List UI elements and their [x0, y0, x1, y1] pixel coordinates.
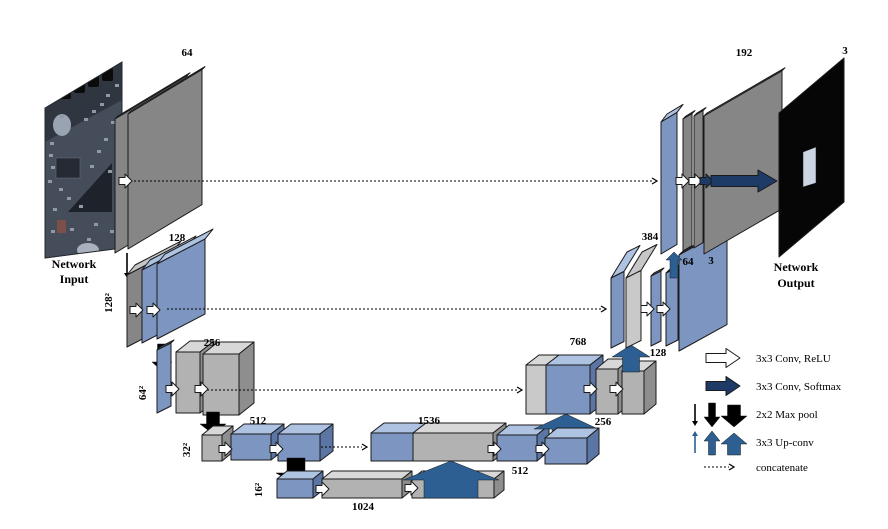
input-image-chip [56, 158, 80, 178]
label-enc4-size: 32² [181, 442, 193, 457]
label-enc3-size: 64² [137, 385, 149, 400]
input-caption-line1: Network [52, 257, 97, 271]
label-dec4-concat: 1536 [418, 415, 441, 427]
concat-line-3-head [517, 387, 522, 393]
legend-conv-softmax-arrow [706, 377, 740, 396]
dec4-upconv-box [371, 433, 413, 461]
legend-concatenate-line-head [729, 464, 734, 470]
label-bottleneck-size: 16² [253, 482, 265, 497]
legend-conv-relu-label: 3x3 Conv, ReLU [756, 353, 831, 365]
bottleneck-pooled-box [277, 479, 313, 498]
label-dec2-concat: 384 [642, 231, 659, 243]
legend-max-pool-small-arrow [704, 403, 720, 427]
legend-concatenate-label: concatenate [756, 462, 808, 474]
enc3-feature-box [176, 352, 200, 413]
input-image-light-blob [77, 243, 99, 257]
enc3-feature-box [203, 354, 239, 415]
legend-max-pool-large-arrow [721, 405, 747, 427]
input-image-red-part [57, 220, 66, 233]
legend-up-conv-thin-arrow-head [692, 431, 698, 436]
label-dec3-up: 128 [650, 347, 667, 359]
diagram-shapes [115, 58, 844, 498]
concat-line-1-head [652, 178, 657, 184]
dec1-upconv-plane [661, 112, 677, 254]
concat-line-2-head [601, 306, 606, 312]
label-enc2-size: 128² [103, 292, 115, 313]
concat-line-4-head [362, 444, 367, 450]
label-enc4-channels: 512 [250, 415, 267, 427]
legend-max-pool-thin-arrow-head [692, 421, 698, 426]
legend-up-conv-label: 3x3 Up-conv [756, 437, 814, 449]
dec1-feature-plane [704, 71, 782, 254]
legend-conv-softmax-label: 3x3 Conv, Softmax [756, 381, 842, 393]
legend-up-conv-small-arrow [704, 431, 720, 455]
dec2-upconv-plane [611, 272, 624, 349]
unet-figure: 64 128 128² 256 64² 512 32² 1024 16² 153… [0, 0, 888, 529]
label-dec2-conv1: 64 [683, 256, 695, 268]
output-defect-region [803, 147, 816, 187]
dec3-feature-box-side [644, 361, 656, 414]
dec4-skip-box [413, 433, 493, 461]
label-dec2-conv2: 3 [708, 255, 714, 267]
dec3-skip-box [546, 365, 590, 414]
dec3-feature-box [622, 371, 644, 414]
output-caption-line2: Output [777, 276, 814, 290]
dec4-feature-box [497, 435, 537, 461]
label-bottleneck-channels: 1024 [352, 501, 375, 513]
label-output-channels: 3 [842, 45, 848, 57]
legend-conv-relu-arrow [706, 349, 740, 368]
dec4-feature-box [545, 438, 587, 464]
label-enc2-channels: 128 [169, 232, 186, 244]
output-caption-line1: Network [774, 260, 819, 274]
input-image [45, 62, 122, 258]
enc4-feature-box [278, 434, 320, 461]
enc3-feature-box-side [239, 342, 254, 415]
enc3-pooled-plane [157, 343, 171, 413]
legend-up-conv-large-arrow [721, 433, 747, 455]
label-dec3-concat: 768 [570, 336, 587, 348]
label-dec4-up: 256 [595, 416, 612, 428]
enc4-feature-box [231, 434, 271, 460]
label-dec4-conv: 512 [512, 465, 529, 477]
unet-diagram: 64 128 128² 256 64² 512 32² 1024 16² 153… [0, 0, 888, 529]
label-enc1-channels: 64 [182, 47, 194, 59]
legend-max-pool-label: 2x2 Max pool [756, 409, 818, 421]
dec2-skip-plane [626, 271, 641, 349]
label-dec1-concat: 192 [736, 47, 753, 59]
enc1-feature-plane [128, 70, 202, 249]
bottleneck-feature-box [322, 479, 402, 498]
input-caption-line2: Input [60, 272, 89, 286]
dec3-upconv-box [526, 365, 546, 414]
bottleneck-feature-box-top [322, 471, 412, 479]
label-enc3-channels: 256 [204, 337, 221, 349]
